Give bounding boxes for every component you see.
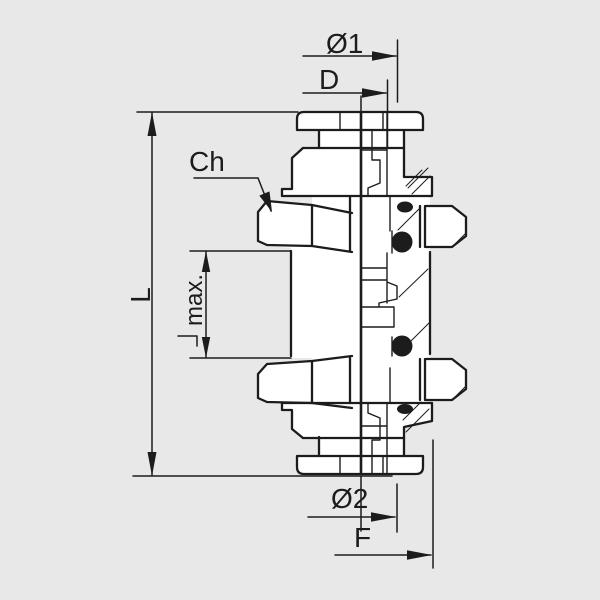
dim-label-l: L: [125, 287, 156, 303]
dim-label-o2: Ø2: [331, 483, 368, 514]
seal-top: [397, 202, 413, 213]
dim-label-max: max.: [181, 274, 208, 326]
seal-bottom: [397, 404, 413, 414]
dim-label-o1: Ø1: [326, 28, 363, 59]
dim-label-ch: Ch: [189, 146, 225, 177]
dim-label-d: D: [319, 64, 339, 95]
o-ring-top: [392, 232, 413, 253]
o-ring-bottom: [392, 336, 413, 357]
fitting-section-drawing: Ø1 D Ch L max. Ø2 F: [0, 0, 600, 600]
dim-label-f: F: [354, 522, 371, 553]
technical-drawing: Ø1 D Ch L max. Ø2 F: [0, 0, 600, 600]
